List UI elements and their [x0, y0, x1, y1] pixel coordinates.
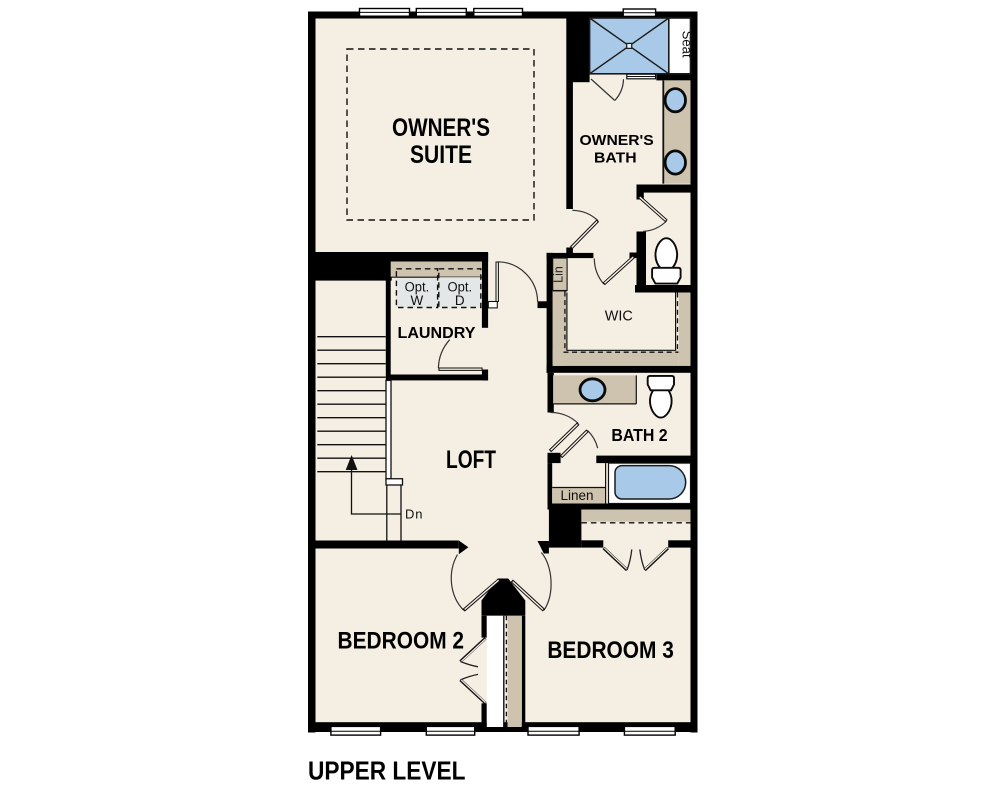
svg-text:BATH 2: BATH 2 — [611, 425, 668, 445]
svg-text:OWNER'S: OWNER'S — [580, 132, 654, 149]
svg-text:OWNER'S: OWNER'S — [392, 114, 490, 142]
svg-text:D: D — [455, 293, 465, 308]
svg-text:BEDROOM 2: BEDROOM 2 — [338, 628, 465, 655]
svg-text:SUITE: SUITE — [410, 141, 472, 169]
svg-text:BEDROOM 3: BEDROOM 3 — [547, 637, 674, 664]
svg-text:Dn: Dn — [405, 507, 423, 522]
svg-text:BATH: BATH — [594, 149, 637, 166]
svg-text:WIC: WIC — [605, 309, 633, 325]
svg-text:LAUNDRY: LAUNDRY — [398, 325, 477, 342]
svg-text:UPPER LEVEL: UPPER LEVEL — [308, 756, 466, 786]
svg-text:LOFT: LOFT — [446, 446, 496, 474]
svg-text:W: W — [411, 293, 424, 308]
svg-text:Linen: Linen — [561, 488, 594, 503]
svg-text:Seat: Seat — [680, 31, 695, 58]
svg-text:Lin: Lin — [551, 266, 565, 283]
